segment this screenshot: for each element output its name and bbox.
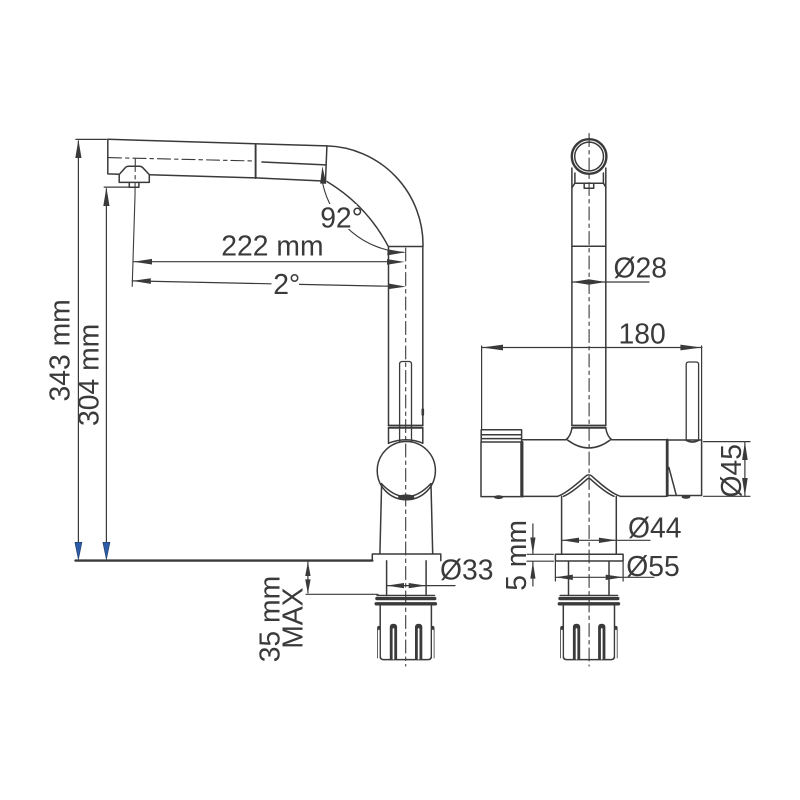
svg-text:92°: 92° [320, 201, 363, 233]
svg-text:Ø28: Ø28 [614, 251, 668, 283]
svg-text:Ø44: Ø44 [628, 511, 682, 543]
svg-text:343 mm: 343 mm [43, 299, 75, 401]
svg-text:Ø55: Ø55 [626, 550, 680, 582]
svg-text:MAX: MAX [277, 587, 309, 648]
svg-text:222 mm: 222 mm [221, 229, 323, 261]
svg-text:2°: 2° [273, 268, 300, 300]
svg-text:304 mm: 304 mm [73, 324, 105, 426]
svg-text:5 mm: 5 mm [500, 520, 532, 591]
svg-text:180: 180 [619, 317, 666, 349]
svg-text:Ø45: Ø45 [715, 444, 747, 498]
svg-text:Ø33: Ø33 [440, 553, 494, 585]
